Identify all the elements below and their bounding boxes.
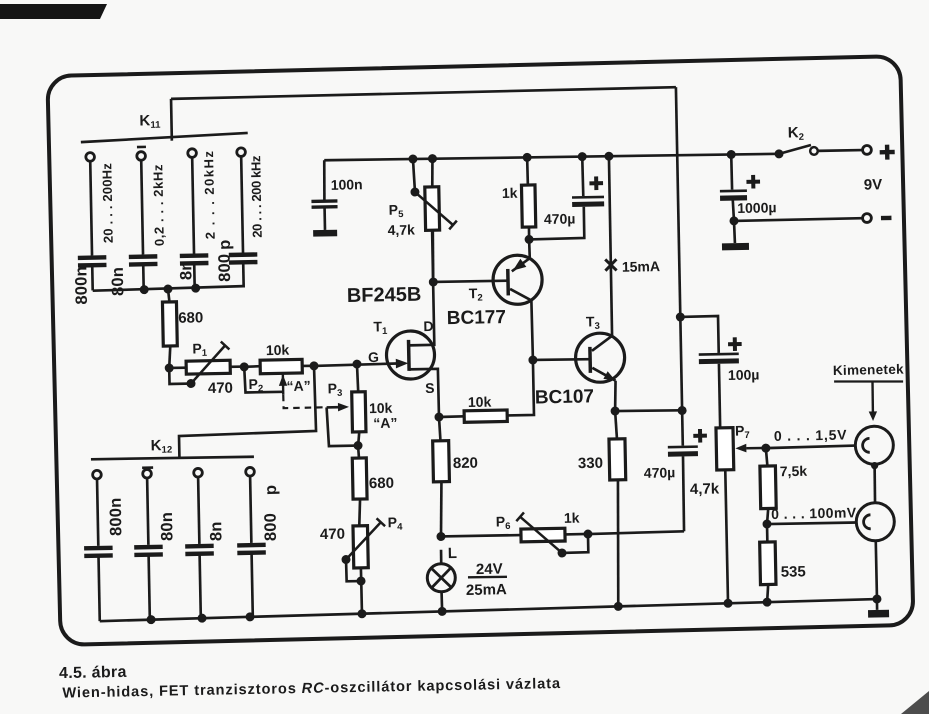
svg-text:20 . . . 200 kHz: 20 . . . 200 kHz	[248, 155, 265, 238]
svg-text:p: p	[216, 240, 234, 250]
svg-text:800: 800	[216, 254, 235, 282]
svg-text:9V: 9V	[864, 176, 883, 193]
svg-text:D: D	[423, 318, 433, 334]
svg-text:100n: 100n	[331, 176, 363, 193]
svg-text:800n: 800n	[107, 497, 126, 536]
svg-text:470: 470	[320, 526, 345, 543]
svg-text:25mA: 25mA	[466, 581, 507, 599]
svg-text:4,7k: 4,7k	[387, 222, 415, 239]
svg-text:24V: 24V	[476, 561, 503, 579]
svg-text:470µ: 470µ	[544, 210, 576, 227]
svg-text:80n: 80n	[158, 512, 177, 541]
svg-text:BF245B: BF245B	[347, 284, 422, 307]
svg-text:8n: 8n	[177, 260, 195, 280]
svg-text:470: 470	[208, 380, 233, 397]
svg-text:680: 680	[178, 309, 203, 326]
svg-text:820: 820	[453, 455, 478, 472]
svg-text:10k: 10k	[266, 342, 290, 358]
svg-text:7,5k: 7,5k	[780, 463, 808, 480]
svg-text:10k: 10k	[369, 400, 393, 416]
svg-text:15mA: 15mA	[622, 258, 660, 275]
svg-text:0 . . . 1,5V: 0 . . . 1,5V	[774, 426, 848, 443]
svg-text:800: 800	[262, 513, 281, 541]
svg-text:1k: 1k	[502, 185, 518, 201]
svg-text:“A”: “A”	[286, 378, 310, 394]
svg-text:800n: 800n	[72, 266, 91, 305]
svg-text:0 . . . 100mV: 0 . . . 100mV	[771, 504, 857, 522]
svg-text:8n: 8n	[207, 521, 225, 541]
svg-text:80n: 80n	[109, 267, 128, 296]
svg-text:p: p	[262, 485, 280, 495]
svg-text:BC177: BC177	[447, 307, 507, 329]
svg-text:535: 535	[781, 563, 806, 580]
svg-text:330: 330	[578, 455, 603, 472]
svg-text:10k: 10k	[468, 394, 492, 410]
svg-text:470µ: 470µ	[644, 464, 676, 481]
svg-text:680: 680	[369, 475, 394, 492]
svg-text:1k: 1k	[564, 510, 580, 526]
svg-text:“A”: “A”	[373, 415, 397, 431]
svg-text:L: L	[448, 545, 457, 562]
svg-text:4.5. ábra: 4.5. ábra	[59, 664, 127, 682]
svg-text:4,7k: 4,7k	[690, 480, 720, 498]
svg-text:G: G	[368, 349, 379, 365]
svg-text:20 . . . 200Hz: 20 . . . 200Hz	[99, 163, 116, 244]
svg-text:Kimenetek: Kimenetek	[833, 362, 904, 378]
svg-text:S: S	[425, 380, 435, 396]
svg-text:0,2 . . . 2kHz: 0,2 . . . 2kHz	[150, 164, 167, 246]
svg-text:2 . . . 20kHz: 2 . . . 20kHz	[201, 149, 218, 239]
svg-text:1000µ: 1000µ	[737, 199, 777, 216]
svg-text:100µ: 100µ	[728, 366, 760, 383]
svg-text:BC107: BC107	[535, 386, 595, 408]
